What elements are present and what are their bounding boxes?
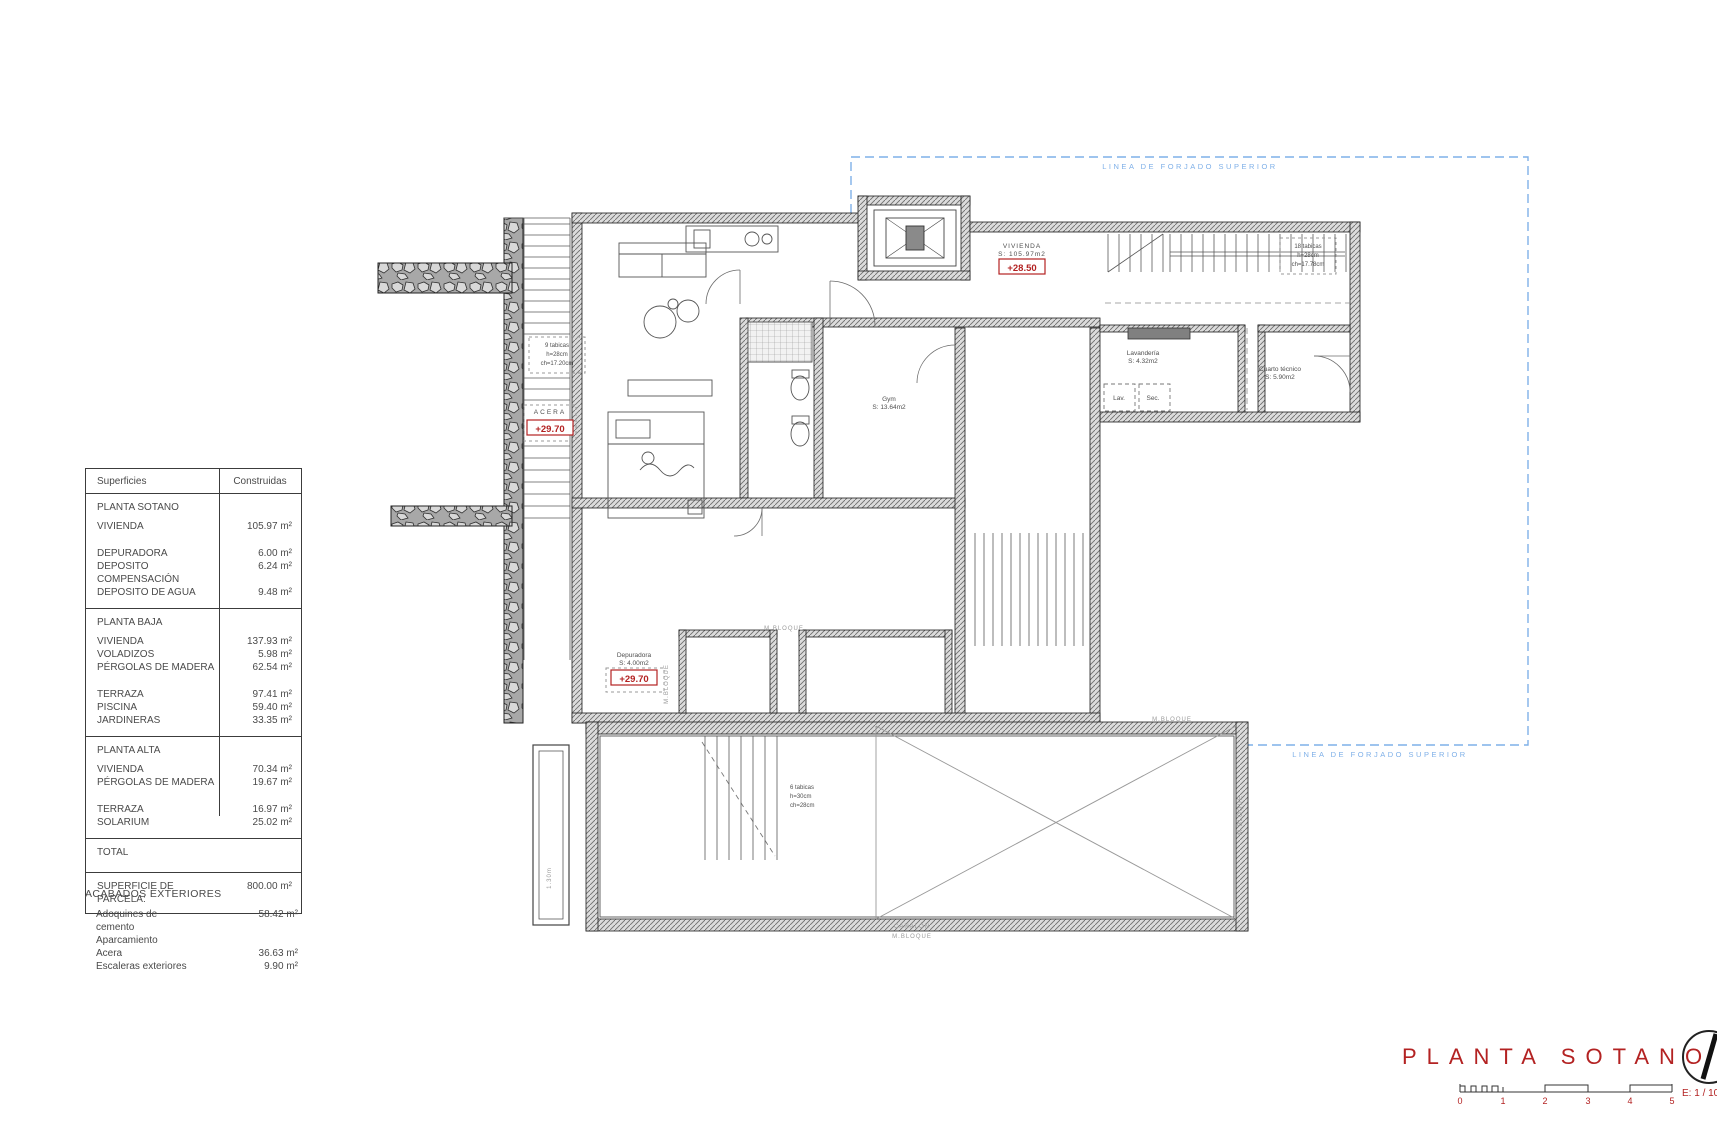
section-title: PLANTA BAJA — [86, 616, 219, 629]
level-badge-acera: +29.70 — [535, 424, 564, 435]
bathroom — [748, 322, 812, 446]
stair-note-pool: 6 tabicas — [790, 785, 814, 791]
room-label-vivienda: VIVIENDA — [1003, 243, 1041, 250]
sideboard — [628, 380, 712, 396]
round-table — [644, 299, 699, 338]
scale-tick: 0 — [1457, 1096, 1462, 1106]
kitchen — [686, 226, 778, 252]
table-row: VOLADIZOS5.98 m² — [86, 648, 301, 661]
stone-walls — [378, 218, 523, 723]
scale-bar — [1460, 1084, 1672, 1092]
acabados-body: Adoquines de cemento Aparcamiento58.42 m… — [85, 908, 307, 973]
stair-note-pool: h=30cm — [790, 794, 812, 800]
acabados-exteriores: ACABADOS EXTERIORES Adoquines de cemento… — [85, 888, 307, 973]
room-label-cuarto-tecnico: S: 5.90m2 — [1265, 374, 1295, 381]
area-table: Superficies Construidas PLANTA SOTANOVIV… — [85, 468, 302, 914]
room-label-acera: ACERA — [534, 409, 566, 416]
table-section-planta-baja: PLANTA BAJAVIVIENDA137.93 m²VOLADIZOS5.9… — [86, 608, 301, 736]
section-title: TOTAL — [86, 846, 219, 859]
table-section-planta-alta: PLANTA ALTAVIVIENDA70.34 m²PÉRGOLAS DE M… — [86, 736, 301, 838]
laundry-counter — [1128, 328, 1190, 339]
scale-label: E: 1 / 10 — [1682, 1088, 1717, 1099]
table-row: DEPOSITO DE AGUA9.48 m² — [86, 586, 301, 599]
room-label-sec: Sec. — [1146, 395, 1159, 402]
floor-plan-sheet: LINEA DE FORJADO SUPERIOR LINEA DE FORJA… — [0, 0, 1717, 1126]
forjado-label-bottom: LINEA DE FORJADO SUPERIOR — [1292, 750, 1467, 759]
scale-tick: 4 — [1627, 1096, 1632, 1106]
table-row: DEPOSITO COMPENSACIÓN6.24 m² — [86, 560, 301, 586]
table-row: PÉRGOLAS DE MADERA62.54 m² — [86, 661, 301, 674]
room-label-depuradora: Depuradora — [617, 652, 652, 659]
table-row: JARDINERAS33.35 m² — [86, 714, 301, 727]
table-row: DEPURADORA6.00 m² — [86, 547, 301, 560]
stair-note-exterior: 9 tabicas — [545, 343, 569, 349]
scale-tick: 2 — [1542, 1096, 1547, 1106]
header-construidas: Construidas — [219, 476, 301, 487]
material-label: M.BLOQUE — [892, 934, 932, 940]
table-section-planta-sotano: PLANTA SOTANOVIVIENDA105.97 m²DEPURADORA… — [86, 494, 301, 608]
acabados-row: Acera36.63 m² — [85, 947, 307, 960]
material-label-vert: M.BLOQUE — [664, 664, 670, 704]
material-label-vert: M.BLOQUE — [1238, 795, 1244, 835]
room-label-lav: Lav. — [1113, 395, 1125, 402]
table-row: TERRAZA97.41 m² — [86, 688, 301, 701]
material-label: M.BLOQUE — [1152, 717, 1192, 723]
sofa — [619, 243, 706, 277]
forjado-superior-line: LINEA DE FORJADO SUPERIOR LINEA DE FORJA… — [851, 157, 1528, 759]
door-arcs — [706, 270, 1350, 536]
sheet-title: PLANTA SOTANO — [1402, 1044, 1712, 1069]
elevator — [874, 210, 956, 266]
room-label-lavanderia: S: 4.32m2 — [1128, 358, 1158, 365]
room-label-vivienda: S: 105.97m2 — [998, 251, 1046, 258]
table-section-total: TOTAL — [86, 838, 301, 872]
area-table-body: PLANTA SOTANOVIVIENDA105.97 m²DEPURADORA… — [86, 494, 301, 913]
room-label-cuarto-tecnico: Cuarto técnico — [1259, 366, 1301, 373]
forjado-label-top: LINEA DE FORJADO SUPERIOR — [1102, 162, 1277, 171]
table-row: PÉRGOLAS DE MADERA19.67 m² — [86, 776, 301, 789]
stair-note-exterior: h=28cm — [546, 352, 568, 358]
room-label-depuradora: S: 4.00m2 — [619, 660, 649, 667]
scale-tick: 1 — [1500, 1096, 1505, 1106]
acabados-row: Escaleras exteriores9.90 m² — [85, 960, 307, 973]
stair-note-interior: 18 tabicas — [1294, 244, 1321, 250]
material-label: M.BLOQUE — [764, 626, 804, 632]
pool-side-channel — [533, 745, 569, 925]
title-block: PLANTA SOTANO E: 1 / 10 — [1402, 1031, 1717, 1099]
scale-tick: 3 — [1585, 1096, 1590, 1106]
acabados-row: Adoquines de cemento Aparcamiento58.42 m… — [85, 908, 307, 947]
section-title: PLANTA ALTA — [86, 744, 219, 757]
stair-note-exterior: ch=17.20cm — [541, 361, 574, 367]
canalon-label: CANALÓN — [894, 923, 930, 930]
dim-label-vert: 1.30m — [547, 867, 553, 889]
table-row: SOLARIUM25.02 m² — [86, 816, 301, 829]
level-badge-depuradora: +29.70 — [619, 674, 648, 685]
table-row: VIVIENDA105.97 m² — [86, 520, 301, 533]
area-table-header: Superficies Construidas — [86, 469, 301, 494]
header-superficies: Superficies — [86, 476, 219, 487]
room-label-gym: Gym — [882, 396, 896, 403]
level-badge-vivienda: +28.50 — [1007, 263, 1036, 274]
room-label-gym: S: 13.64m2 — [872, 404, 906, 411]
table-row: PISCINA59.40 m² — [86, 701, 301, 714]
stair-note-pool: ch=28cm — [790, 803, 815, 809]
room-label-lavanderia: Lavandería — [1127, 350, 1160, 357]
table-row: VIVIENDA70.34 m² — [86, 763, 301, 776]
acabados-title: ACABADOS EXTERIORES — [85, 888, 307, 900]
section-title: PLANTA SOTANO — [86, 501, 219, 514]
table-row: TERRAZA16.97 m² — [86, 803, 301, 816]
stair-note-interior: ch=17.78cm — [1292, 262, 1325, 268]
table-row: VIVIENDA137.93 m² — [86, 635, 301, 648]
pool-area — [600, 726, 1236, 919]
scale-tick: 5 — [1669, 1096, 1674, 1106]
stair-note-interior: h=28cm — [1297, 253, 1319, 259]
